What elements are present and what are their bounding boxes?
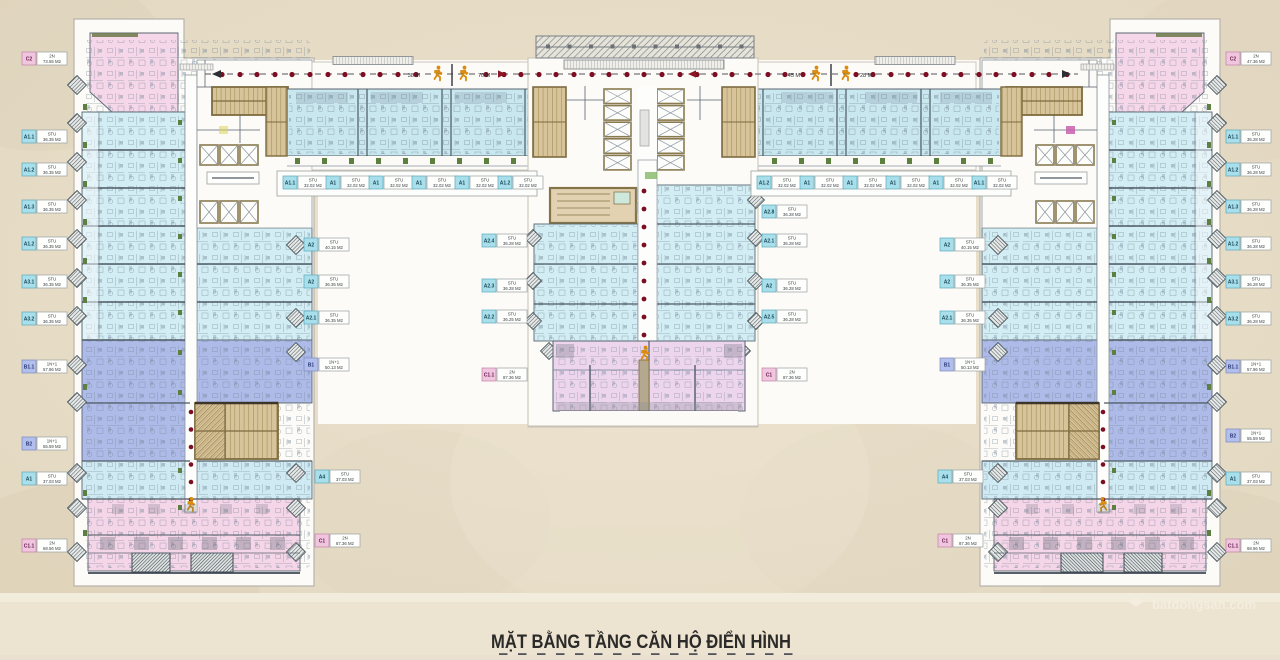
svg-text:36.35 M2: 36.35 M2 [43, 207, 62, 212]
svg-text:A1.1: A1.1 [1228, 134, 1239, 140]
svg-text:1N+1: 1N+1 [47, 438, 58, 443]
svg-text:B1.1: B1.1 [1228, 364, 1239, 370]
svg-text:32.02 M2: 32.02 M2 [864, 183, 883, 188]
svg-text:73.55 M2: 73.55 M2 [43, 59, 62, 64]
svg-text:2N: 2N [1253, 53, 1259, 58]
svg-text:36.35 M2: 36.35 M2 [43, 319, 62, 324]
svg-text:36.35 M2: 36.35 M2 [325, 318, 344, 323]
svg-text:A2: A2 [944, 279, 951, 285]
svg-text:45 M: 45 M [788, 73, 801, 79]
svg-text:STU: STU [48, 473, 57, 478]
svg-text:STU: STU [1252, 201, 1261, 206]
svg-text:36.28 M2: 36.28 M2 [1247, 282, 1266, 287]
svg-text:37.03 M2: 37.03 M2 [1247, 479, 1266, 484]
svg-text:C1: C1 [942, 538, 949, 544]
svg-text:36.35 M2: 36.35 M2 [961, 318, 980, 323]
svg-text:2N: 2N [1253, 540, 1259, 545]
svg-text:55.59 M2: 55.59 M2 [43, 444, 62, 449]
svg-text:37.03 M2: 37.03 M2 [336, 477, 355, 482]
svg-text:36.28 M2: 36.28 M2 [783, 241, 802, 246]
svg-text:2N: 2N [789, 369, 795, 374]
svg-text:STU: STU [508, 280, 517, 285]
svg-text:32.02 M2: 32.02 M2 [390, 183, 409, 188]
svg-text:68.56 M2: 68.56 M2 [43, 546, 62, 551]
svg-text:A2.8: A2.8 [764, 209, 775, 215]
svg-text:36.28 M2: 36.28 M2 [1247, 319, 1266, 324]
svg-text:A1.2: A1.2 [500, 180, 511, 186]
svg-text:36.28 M2: 36.28 M2 [503, 286, 522, 291]
svg-text:STU: STU [1252, 313, 1261, 318]
svg-text:STU: STU [524, 177, 533, 182]
svg-text:36.35 M2: 36.35 M2 [43, 244, 62, 249]
svg-text:87.36 M2: 87.36 M2 [959, 541, 978, 546]
svg-text:68.56 M2: 68.56 M2 [1247, 546, 1266, 551]
svg-text:A3.2: A3.2 [1228, 316, 1239, 322]
svg-text:36.28 M2: 36.28 M2 [1247, 244, 1266, 249]
svg-text:50.13 M2: 50.13 M2 [961, 365, 980, 370]
svg-text:A4: A4 [942, 474, 949, 480]
svg-text:32.02 M2: 32.02 M2 [433, 183, 452, 188]
svg-text:32.02 M2: 32.02 M2 [304, 183, 323, 188]
svg-text:A3.1: A3.1 [1228, 279, 1239, 285]
svg-text:STU: STU [341, 471, 350, 476]
svg-text:70 M: 70 M [478, 73, 491, 79]
svg-text:A1: A1 [847, 180, 854, 186]
svg-text:C1: C1 [319, 538, 326, 544]
svg-text:C1.1: C1.1 [484, 372, 495, 378]
svg-text:36.28 M2: 36.28 M2 [1247, 207, 1266, 212]
svg-text:1N+1: 1N+1 [965, 359, 976, 364]
svg-text:STU: STU [788, 280, 797, 285]
svg-text:28 M: 28 M [860, 73, 873, 79]
svg-text:A2: A2 [766, 283, 773, 289]
svg-text:STU: STU [48, 238, 57, 243]
svg-text:37.03 M2: 37.03 M2 [43, 479, 62, 484]
svg-text:A2: A2 [308, 242, 315, 248]
svg-text:87.36 M2: 87.36 M2 [783, 375, 802, 380]
svg-text:57.96 M2: 57.96 M2 [43, 367, 62, 372]
svg-text:32.02 M2: 32.02 M2 [907, 183, 926, 188]
svg-text:STU: STU [869, 177, 878, 182]
svg-text:1N+1: 1N+1 [329, 359, 340, 364]
svg-text:50.13 M2: 50.13 M2 [325, 365, 344, 370]
svg-text:32.02 M2: 32.02 M2 [476, 183, 495, 188]
svg-text:32.02 M2: 32.02 M2 [821, 183, 840, 188]
svg-text:2N: 2N [965, 535, 971, 540]
svg-text:36.28 M2: 36.28 M2 [783, 286, 802, 291]
svg-text:32.02 M2: 32.02 M2 [778, 183, 797, 188]
svg-text:A2.4: A2.4 [484, 238, 495, 244]
svg-text:40.15 M2: 40.15 M2 [325, 245, 344, 250]
svg-text:A2.1: A2.1 [942, 315, 953, 321]
svg-text:STU: STU [826, 177, 835, 182]
svg-text:MẶT BẰNG TẦNG CĂN HỘ ĐIỂN HÌNH: MẶT BẰNG TẦNG CĂN HỘ ĐIỂN HÌNH [491, 630, 791, 653]
svg-text:STU: STU [352, 177, 361, 182]
svg-text:1N+1: 1N+1 [47, 361, 58, 366]
svg-text:A3.1: A3.1 [24, 279, 35, 285]
svg-text:36.28 M2: 36.28 M2 [783, 317, 802, 322]
svg-text:STU: STU [788, 206, 797, 211]
svg-text:36.28 M2: 36.28 M2 [503, 241, 522, 246]
svg-text:STU: STU [912, 177, 921, 182]
svg-text:B1.1: B1.1 [24, 364, 35, 370]
svg-text:B2: B2 [26, 441, 33, 447]
svg-text:B2: B2 [1230, 433, 1237, 439]
svg-text:A2.2: A2.2 [484, 314, 495, 320]
svg-text:2N: 2N [342, 535, 348, 540]
svg-text:A1: A1 [26, 476, 33, 482]
svg-text:1N+1: 1N+1 [1251, 361, 1262, 366]
svg-text:A1.1: A1.1 [974, 180, 985, 186]
svg-text:STU: STU [788, 311, 797, 316]
svg-text:STU: STU [1252, 238, 1261, 243]
svg-text:B1: B1 [308, 362, 315, 368]
svg-text:STU: STU [783, 177, 792, 182]
svg-text:36.35 M2: 36.35 M2 [43, 137, 62, 142]
svg-text:A1.2: A1.2 [24, 167, 35, 173]
svg-text:A2.1: A2.1 [306, 315, 317, 321]
svg-text:C1: C1 [766, 372, 773, 378]
svg-text:36.28 M2: 36.28 M2 [1247, 137, 1266, 142]
svg-text:STU: STU [1252, 473, 1261, 478]
svg-text:STU: STU [966, 312, 975, 317]
svg-text:STU: STU [966, 276, 975, 281]
svg-text:87.36 M2: 87.36 M2 [336, 541, 355, 546]
svg-text:47.36 M2: 47.36 M2 [1247, 59, 1266, 64]
svg-text:A1: A1 [416, 180, 423, 186]
svg-text:STU: STU [48, 131, 57, 136]
svg-text:C2: C2 [26, 56, 33, 62]
svg-text:A1.1: A1.1 [285, 180, 296, 186]
svg-text:1N+1: 1N+1 [1251, 430, 1262, 435]
svg-text:STU: STU [955, 177, 964, 182]
svg-text:38 M: 38 M [408, 73, 421, 79]
svg-text:C1.1: C1.1 [1228, 543, 1239, 549]
svg-text:B1: B1 [944, 362, 951, 368]
svg-text:A4: A4 [319, 474, 326, 480]
svg-text:STU: STU [48, 276, 57, 281]
svg-text:55.59 M2: 55.59 M2 [1247, 436, 1266, 441]
svg-text:STU: STU [309, 177, 318, 182]
svg-text:A1: A1 [330, 180, 337, 186]
svg-text:2N: 2N [509, 369, 515, 374]
svg-text:STU: STU [788, 235, 797, 240]
svg-text:STU: STU [438, 177, 447, 182]
svg-text:A1: A1 [890, 180, 897, 186]
svg-text:A1.2: A1.2 [24, 241, 35, 247]
svg-text:32.02 M2: 32.02 M2 [950, 183, 969, 188]
svg-text:36.35 M2: 36.35 M2 [43, 282, 62, 287]
svg-text:STU: STU [964, 471, 973, 476]
svg-text:A1: A1 [804, 180, 811, 186]
svg-text:STU: STU [330, 312, 339, 317]
svg-text:A3.2: A3.2 [24, 316, 35, 322]
svg-text:32.02 M2: 32.02 M2 [519, 183, 538, 188]
svg-text:36.35 M2: 36.35 M2 [325, 282, 344, 287]
svg-text:STU: STU [508, 235, 517, 240]
svg-text:C1.1: C1.1 [24, 543, 35, 549]
svg-text:STU: STU [966, 239, 975, 244]
svg-text:STU: STU [48, 201, 57, 206]
svg-text:A2: A2 [308, 279, 315, 285]
svg-text:A1.3: A1.3 [24, 204, 35, 210]
svg-text:32.02 M2: 32.02 M2 [347, 183, 366, 188]
svg-text:36.35 M2: 36.35 M2 [961, 282, 980, 287]
svg-text:A2.1: A2.1 [764, 238, 775, 244]
svg-text:STU: STU [395, 177, 404, 182]
svg-text:A1: A1 [459, 180, 466, 186]
svg-text:A1.2: A1.2 [759, 180, 770, 186]
svg-text:A1.2: A1.2 [1228, 241, 1239, 247]
svg-text:40.15 M2: 40.15 M2 [961, 245, 980, 250]
svg-text:A1.3: A1.3 [1228, 204, 1239, 210]
svg-text:STU: STU [1252, 131, 1261, 136]
svg-text:A1: A1 [1230, 476, 1237, 482]
svg-text:2N: 2N [49, 540, 55, 545]
svg-text:STU: STU [481, 177, 490, 182]
svg-text:37.03 M2: 37.03 M2 [959, 477, 978, 482]
svg-text:A1: A1 [933, 180, 940, 186]
svg-text:36.25 M2: 36.25 M2 [503, 317, 522, 322]
svg-text:A1.2: A1.2 [1228, 167, 1239, 173]
svg-text:STU: STU [508, 311, 517, 316]
svg-text:STU: STU [48, 313, 57, 318]
svg-text:32.02 M2: 32.02 M2 [993, 183, 1012, 188]
svg-text:STU: STU [1252, 276, 1261, 281]
svg-text:STU: STU [330, 276, 339, 281]
svg-text:STU: STU [1252, 164, 1261, 169]
svg-text:A2: A2 [944, 242, 951, 248]
svg-text:36.28 M2: 36.28 M2 [1247, 170, 1266, 175]
svg-text:36.35 M2: 36.35 M2 [43, 170, 62, 175]
svg-text:C2: C2 [1230, 56, 1237, 62]
svg-text:2N: 2N [49, 53, 55, 58]
svg-text:STU: STU [998, 177, 1007, 182]
svg-text:36.28 M2: 36.28 M2 [783, 212, 802, 217]
svg-text:STU: STU [48, 164, 57, 169]
svg-text:A1: A1 [373, 180, 380, 186]
svg-text:batdongsan.com: batdongsan.com [1152, 597, 1256, 612]
svg-text:STU: STU [330, 239, 339, 244]
svg-text:87.36 M2: 87.36 M2 [503, 375, 522, 380]
svg-text:57.96 M2: 57.96 M2 [1247, 367, 1266, 372]
svg-text:A1.1: A1.1 [24, 134, 35, 140]
svg-text:A2.3: A2.3 [484, 283, 495, 289]
svg-text:A2.5: A2.5 [764, 314, 775, 320]
